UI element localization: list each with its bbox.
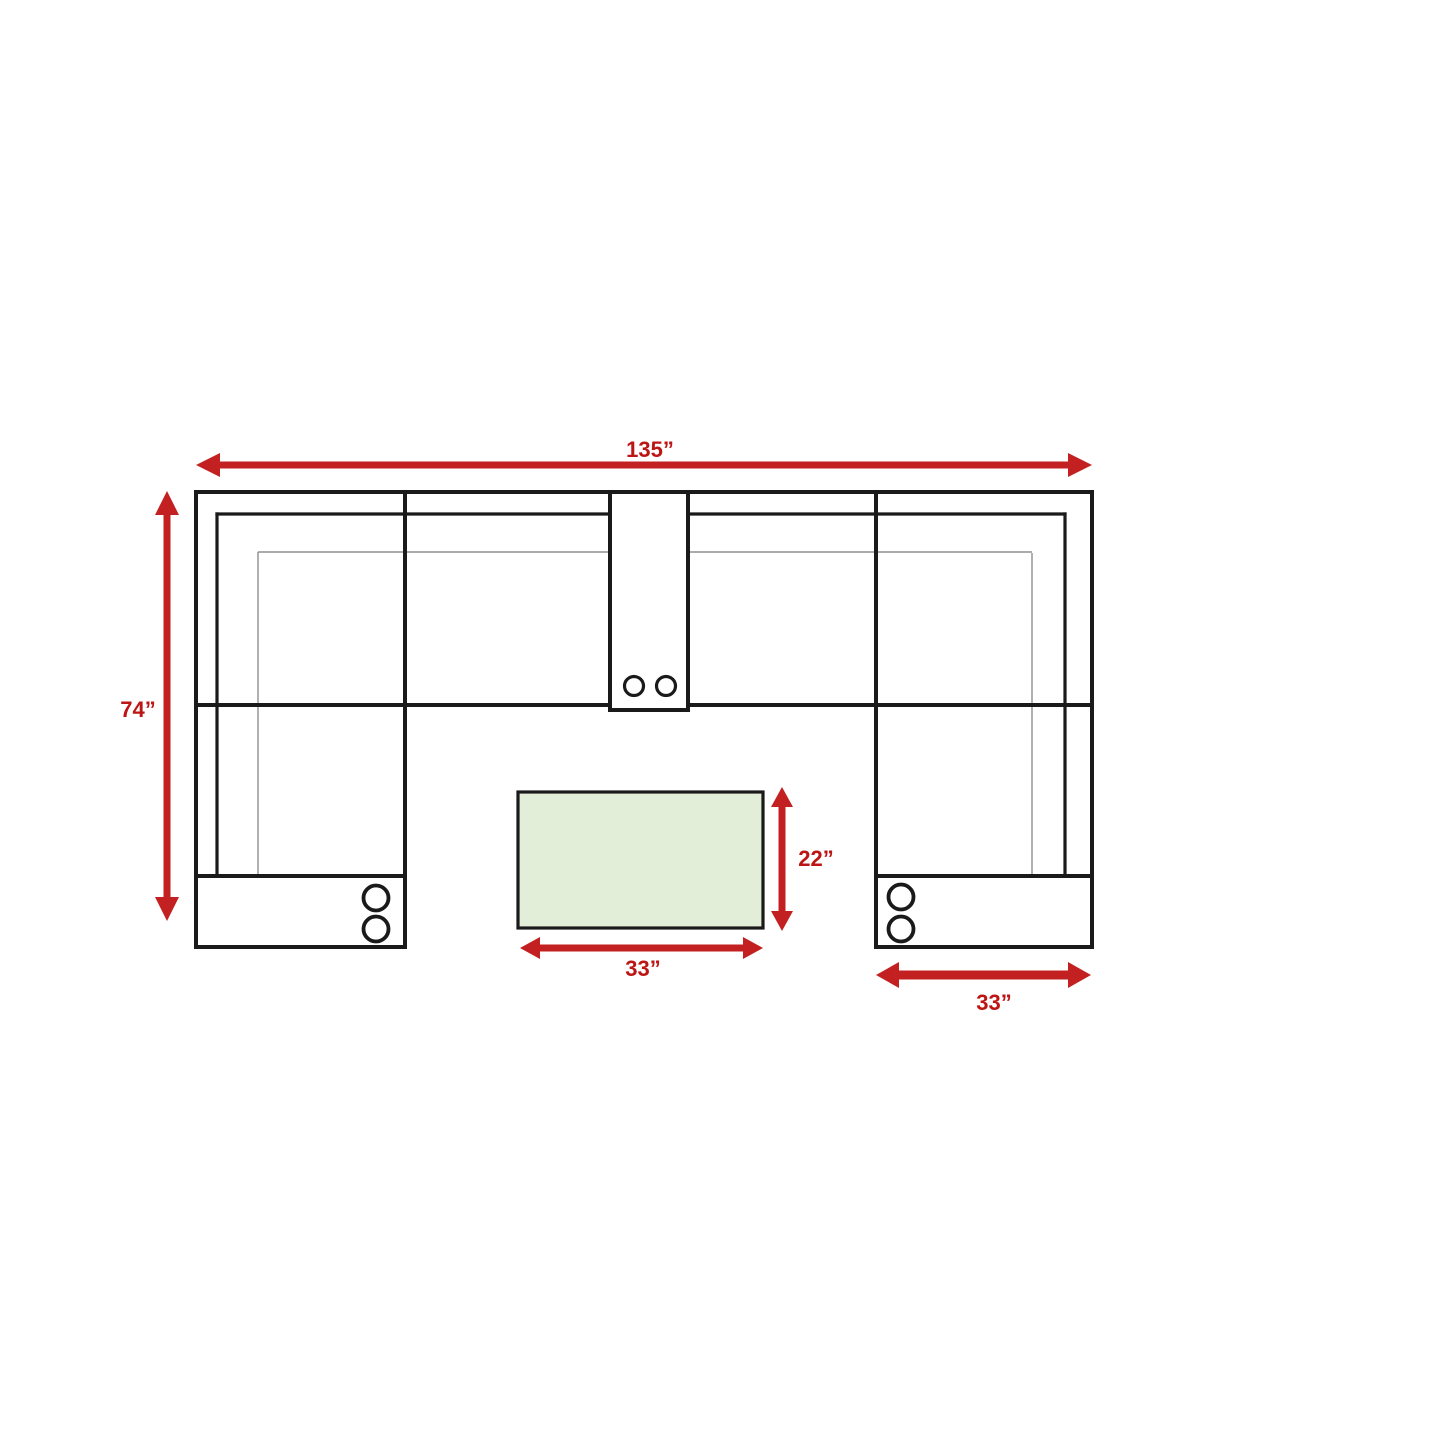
arrow-head-bottom-icon	[771, 911, 793, 931]
left-chaise-foot	[196, 876, 405, 942]
cupholder-icon	[364, 886, 389, 911]
arrow-shaft	[896, 971, 1071, 980]
arrow-head-top-icon	[155, 491, 179, 515]
arrow-head-top-icon	[771, 787, 793, 807]
arrow-head-left-icon	[520, 937, 540, 959]
cupholder-icon	[889, 885, 914, 910]
table-depth-dimension: 22”	[771, 787, 834, 931]
right-chaise-foot	[876, 876, 1092, 942]
center-console	[610, 492, 688, 710]
arrow-head-left-icon	[876, 962, 899, 988]
width-dimension-label: 135”	[626, 437, 674, 462]
table-width-dimension-label: 33”	[625, 956, 660, 981]
arrow-head-right-icon	[743, 937, 763, 959]
cupholder-icon	[364, 917, 389, 942]
arrow-shaft	[214, 462, 1074, 469]
cupholder-icon	[625, 677, 644, 696]
arrow-head-right-icon	[1068, 962, 1091, 988]
arrow-head-bottom-icon	[155, 897, 179, 921]
arrow-shaft	[164, 510, 171, 903]
sofa-dimension-diagram: 135” 74” 22” 33” 33”	[0, 0, 1445, 1445]
chaise-width-dimension-label: 33”	[976, 990, 1011, 1015]
cupholder-icon	[657, 677, 676, 696]
width-dimension: 135”	[196, 437, 1092, 477]
cupholder-icon	[889, 917, 914, 942]
table-width-dimension: 33”	[520, 937, 763, 981]
depth-dimension-label: 74”	[120, 697, 155, 722]
arrow-head-left-icon	[196, 453, 220, 477]
arrow-shaft	[779, 803, 786, 915]
arrow-head-right-icon	[1068, 453, 1092, 477]
console-body	[612, 494, 686, 708]
table-depth-dimension-label: 22”	[798, 846, 833, 871]
chaise-width-dimension: 33”	[876, 962, 1091, 1015]
coffee-table	[518, 792, 763, 928]
depth-dimension: 74”	[120, 491, 179, 921]
arrow-shaft	[536, 945, 747, 952]
